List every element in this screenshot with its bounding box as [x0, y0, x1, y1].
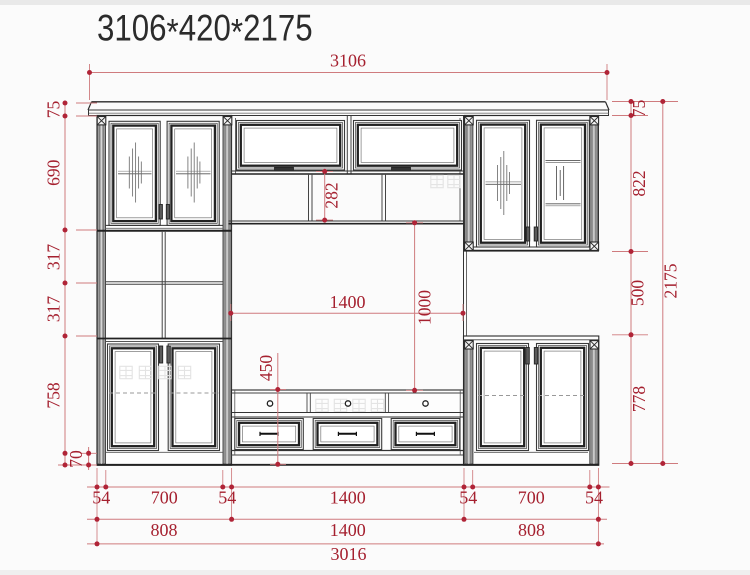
svg-text:317: 317: [44, 244, 64, 271]
svg-text:75: 75: [44, 101, 64, 119]
svg-text:700: 700: [151, 488, 178, 508]
svg-text:1400: 1400: [330, 520, 366, 540]
svg-text:317: 317: [44, 296, 64, 323]
svg-text:822: 822: [629, 170, 649, 196]
svg-text:282: 282: [322, 182, 342, 208]
svg-text:500: 500: [628, 280, 648, 307]
svg-text:3106*420*2175: 3106*420*2175: [97, 8, 313, 53]
svg-text:70: 70: [66, 450, 86, 468]
svg-text:1000: 1000: [415, 290, 435, 325]
svg-text:700: 700: [518, 488, 545, 508]
svg-text:54: 54: [459, 488, 477, 508]
svg-text:54: 54: [92, 488, 110, 508]
svg-text:1400: 1400: [330, 488, 366, 508]
svg-text:75: 75: [629, 100, 649, 118]
svg-text:3016: 3016: [331, 544, 367, 564]
svg-text:808: 808: [518, 520, 545, 540]
svg-text:3106: 3106: [330, 51, 366, 71]
svg-text:778: 778: [629, 386, 649, 413]
svg-text:758: 758: [44, 382, 64, 409]
svg-text:690: 690: [44, 159, 64, 186]
svg-text:54: 54: [585, 488, 603, 508]
svg-text:2175: 2175: [661, 263, 681, 298]
svg-text:450: 450: [256, 355, 276, 382]
svg-text:54: 54: [218, 488, 236, 508]
svg-text:1400: 1400: [330, 292, 366, 312]
svg-text:808: 808: [151, 520, 178, 540]
